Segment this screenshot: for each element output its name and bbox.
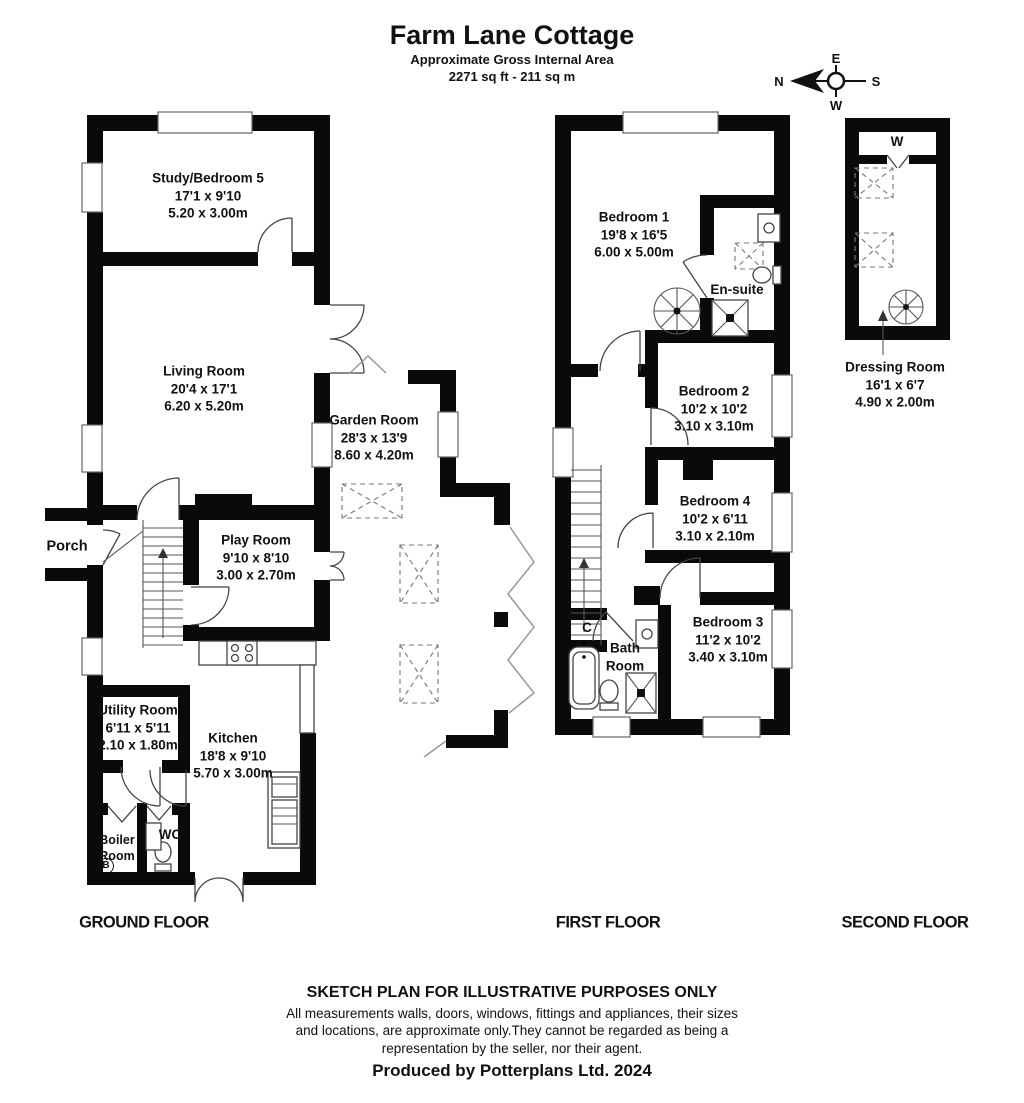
room-label-study: Study/Bedroom 5 17'1 x 9'10 5.20 x 3.00m (152, 170, 264, 223)
window (593, 717, 630, 737)
ground-floor-walls (45, 115, 510, 885)
room-label-wc: WC (159, 826, 182, 844)
room-name: W (891, 133, 904, 151)
room-dims-imperial: 11'2 x 10'2 (688, 631, 768, 649)
compass-w-label: W (830, 98, 843, 113)
wardrobe-wall (909, 155, 936, 164)
ground-floor-windows (82, 112, 458, 675)
ensuite-fixtures (712, 214, 781, 336)
hob-icon (227, 641, 257, 665)
room-label-living: Living Room 20'4 x 17'1 6.20 x 5.20m (163, 363, 245, 416)
ground-floor-plan (45, 112, 534, 902)
porch-wall (45, 508, 87, 521)
second-floor-plan (845, 118, 950, 355)
room-name: Living Room (163, 363, 245, 381)
room-name: C (582, 619, 592, 637)
boiler-tag: B (98, 858, 114, 874)
room-label-bathroom: Bath Room (606, 639, 644, 674)
bifold-door (108, 806, 136, 822)
room-name: Bedroom 4 (675, 493, 755, 511)
room-dims-metric: 2.10 x 1.80m (98, 737, 178, 755)
room-label-play: Play Room 9'10 x 8'10 3.00 x 2.70m (216, 532, 296, 585)
window (553, 428, 573, 477)
window (772, 493, 792, 552)
room-dims-metric: 6.00 x 5.00m (594, 244, 674, 262)
second-floor-label: SECOND FLOOR (842, 914, 969, 933)
kitchen-counter (300, 665, 314, 733)
room-dims-imperial: 20'4 x 17'1 (163, 380, 245, 398)
room-label-bedroom2: Bedroom 2 10'2 x 10'2 3.10 x 3.10m (674, 383, 754, 436)
room-dims-imperial: 10'2 x 6'11 (675, 510, 755, 528)
room-label-bedroom4: Bedroom 4 10'2 x 6'11 3.10 x 2.10m (675, 493, 755, 546)
room-dims-imperial: 19'8 x 16'5 (594, 226, 674, 244)
compass-e-label: E (832, 51, 841, 66)
room-label-kitchen: Kitchen 18'8 x 9'10 5.70 x 3.00m (193, 730, 273, 783)
toilet-icon (600, 680, 618, 710)
window (82, 638, 102, 675)
room-dims-imperial: 17'1 x 9'10 (152, 187, 264, 205)
compass-n-label: N (774, 74, 783, 89)
spiral-staircase-icon (654, 288, 700, 334)
chimney-breast (195, 494, 252, 520)
skylight (855, 168, 893, 198)
chimney-breast (683, 447, 713, 480)
room-name: Play Room (216, 532, 296, 550)
room-label-dressing: Dressing Room 16'1 x 6'7 4.90 x 2.00m (845, 359, 945, 412)
room-dims-metric: 5.70 x 3.00m (193, 765, 273, 783)
room-dims-metric: 3.10 x 2.10m (675, 528, 755, 546)
room-name-line1: Boiler (99, 832, 134, 848)
disclaimer-line: representation by the seller, nor their … (0, 1040, 1024, 1057)
room-name: Bedroom 3 (688, 614, 768, 632)
ground-staircase (103, 520, 183, 648)
room-dims-metric: 4.90 x 2.00m (845, 394, 945, 412)
window (82, 163, 102, 212)
skylight (855, 233, 893, 267)
room-name: Study/Bedroom 5 (152, 170, 264, 188)
room-dims-imperial: 9'10 x 8'10 (216, 549, 296, 567)
room-dims-imperial: 16'1 x 6'7 (845, 376, 945, 394)
disclaimer-line: and locations, are approximate only.They… (0, 1022, 1024, 1039)
window (772, 610, 792, 668)
room-label-bedroom3: Bedroom 3 11'2 x 10'2 3.40 x 3.10m (688, 614, 768, 667)
room-label-utility: Utility Room 6'11 x 5'11 2.10 x 1.80m (98, 702, 178, 755)
disclaimer: SKETCH PLAN FOR ILLUSTRATIVE PURPOSES ON… (0, 984, 1024, 1081)
room-label-porch: Porch (46, 538, 87, 557)
room-name-line2: Room (606, 657, 644, 675)
room-dims-metric: 3.00 x 2.70m (216, 567, 296, 585)
room-name: WC (159, 826, 182, 844)
room-dims-metric: 8.60 x 4.20m (329, 447, 418, 465)
fridge-freezer-icon (268, 772, 300, 848)
room-dims-imperial: 6'11 x 5'11 (98, 719, 178, 737)
disclaimer-line: All measurements walls, doors, windows, … (0, 1005, 1024, 1022)
window (623, 112, 718, 133)
room-label-ensuite: En-suite (710, 281, 763, 299)
wardrobe-wall (859, 155, 887, 164)
bath-icon (569, 647, 599, 709)
room-label-garden: Garden Room 28'3 x 13'9 8.60 x 4.20m (329, 412, 418, 465)
garden-room-skylights (342, 484, 438, 703)
window (438, 412, 458, 457)
window (703, 717, 760, 737)
room-label-cupboard: C (582, 619, 592, 637)
sink-icon (758, 214, 780, 242)
room-dims-metric: 5.20 x 3.00m (152, 205, 264, 223)
room-dims-metric: 6.20 x 5.20m (163, 398, 245, 416)
room-dims-metric: 3.10 x 3.10m (674, 418, 754, 436)
room-name: En-suite (710, 281, 763, 299)
room-label-bedroom1: Bedroom 1 19'8 x 16'5 6.00 x 5.00m (594, 209, 674, 262)
disclaimer-title: SKETCH PLAN FOR ILLUSTRATIVE PURPOSES ON… (0, 984, 1024, 1002)
room-name: Bedroom 1 (594, 209, 674, 227)
room-label-wardrobe: W (891, 133, 904, 151)
window (772, 375, 792, 437)
room-dims-imperial: 10'2 x 10'2 (674, 400, 754, 418)
ground-floor-label: GROUND FLOOR (79, 914, 209, 933)
bifold-door (147, 806, 171, 820)
room-name: Garden Room (329, 412, 418, 430)
shower-icon (712, 300, 748, 336)
wardrobe-doors (887, 155, 909, 168)
room-name: Porch (46, 538, 87, 557)
spiral-staircase-icon (889, 290, 923, 324)
room-name: Kitchen (193, 730, 273, 748)
room-dims-imperial: 18'8 x 9'10 (193, 747, 273, 765)
room-name: Utility Room (98, 702, 178, 720)
second-floor-skylights (855, 168, 893, 267)
first-floor-label: FIRST FLOOR (556, 914, 661, 933)
shower-icon (626, 673, 656, 713)
floorplan-page: Farm Lane Cottage Approximate Gross Inte… (0, 0, 1024, 1103)
window (158, 112, 252, 133)
floorplan-drawing: N E S W (0, 0, 1024, 1103)
room-name: Dressing Room (845, 359, 945, 377)
room-name: Bedroom 2 (674, 383, 754, 401)
room-dims-metric: 3.40 x 3.10m (688, 649, 768, 667)
room-dims-imperial: 28'3 x 13'9 (329, 429, 418, 447)
compass-icon: N E S W (774, 51, 880, 113)
room-name-line1: Bath (606, 639, 644, 657)
compass-s-label: S (872, 74, 881, 89)
window (82, 425, 102, 472)
producer-credit: Produced by Potterplans Ltd. 2024 (0, 1061, 1024, 1081)
porch-wall (45, 568, 87, 581)
